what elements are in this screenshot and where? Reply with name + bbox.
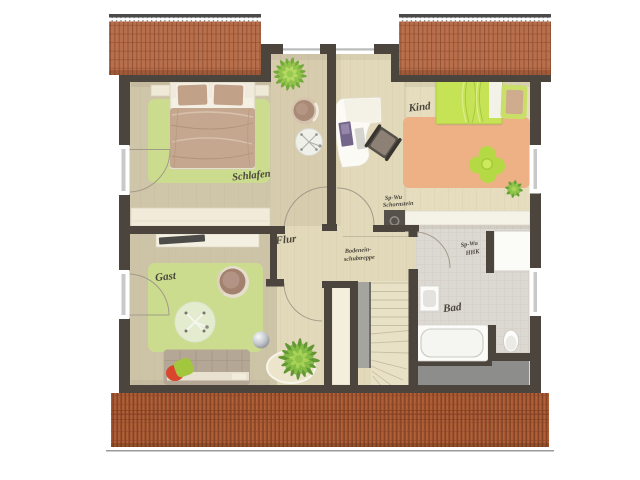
svg-text:Kind: Kind [407,100,432,114]
svg-text:Gast: Gast [155,270,178,284]
svg-text:Flur: Flur [274,233,298,247]
svg-text:Bad: Bad [442,301,463,315]
